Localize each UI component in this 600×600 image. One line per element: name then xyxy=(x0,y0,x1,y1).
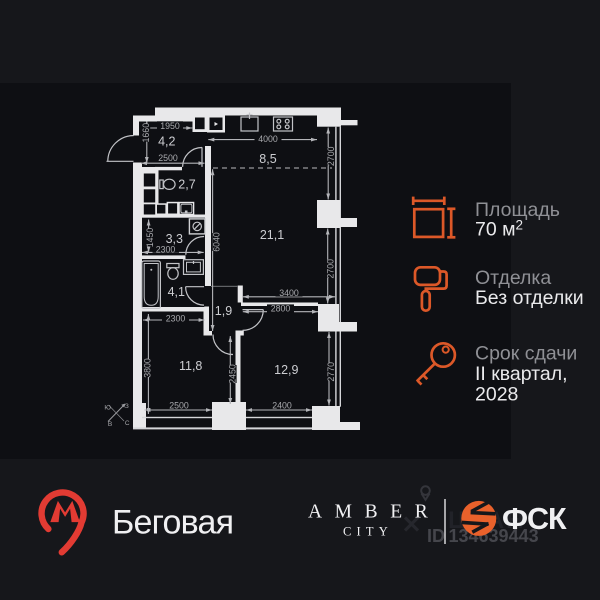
svg-text:3800: 3800 xyxy=(143,358,153,378)
svg-text:4000: 4000 xyxy=(258,134,278,144)
svg-text:2770: 2770 xyxy=(326,362,336,382)
svg-text:CITY: CITY xyxy=(343,524,393,538)
svg-text:8,5: 8,5 xyxy=(259,152,276,166)
svg-text:12,9: 12,9 xyxy=(274,363,298,377)
svg-text:В: В xyxy=(108,421,112,428)
svg-text:2700: 2700 xyxy=(326,146,336,166)
svg-text:3400: 3400 xyxy=(279,288,299,298)
svg-text:4,1: 4,1 xyxy=(168,285,185,299)
svg-text:1950: 1950 xyxy=(160,121,180,131)
svg-text:2028: 2028 xyxy=(475,384,518,406)
svg-text:Без отделки: Без отделки xyxy=(475,287,584,309)
svg-text:1,9: 1,9 xyxy=(215,304,232,318)
svg-text:Отделка: Отделка xyxy=(475,267,551,289)
svg-text:2300: 2300 xyxy=(156,244,176,254)
svg-text:2400: 2400 xyxy=(272,400,292,410)
svg-text:1450: 1450 xyxy=(145,228,155,248)
svg-text:4,2: 4,2 xyxy=(158,134,175,148)
svg-text:1660: 1660 xyxy=(141,123,151,143)
svg-text:2,7: 2,7 xyxy=(178,178,195,192)
svg-text:2700: 2700 xyxy=(325,259,335,279)
svg-text:Срок сдачи: Срок сдачи xyxy=(475,343,577,365)
svg-text:ФСК: ФСК xyxy=(502,502,567,536)
svg-text:AMBER: AMBER xyxy=(308,501,440,522)
svg-text:2800: 2800 xyxy=(271,304,291,314)
svg-text:6040: 6040 xyxy=(211,232,221,252)
svg-text:Ю: Ю xyxy=(104,404,111,411)
svg-text:З: З xyxy=(125,403,129,410)
svg-text:II квартал,: II квартал, xyxy=(475,363,568,385)
svg-text:ID: ID xyxy=(427,526,445,546)
svg-text:2300: 2300 xyxy=(166,313,186,323)
svg-text:2500: 2500 xyxy=(169,400,189,410)
svg-text:2450: 2450 xyxy=(227,364,237,384)
svg-text:21,1: 21,1 xyxy=(260,228,284,242)
svg-text:2500: 2500 xyxy=(158,153,178,163)
svg-text:Беговая: Беговая xyxy=(112,504,233,542)
svg-text:С: С xyxy=(125,420,130,427)
svg-text:11,8: 11,8 xyxy=(179,359,202,373)
